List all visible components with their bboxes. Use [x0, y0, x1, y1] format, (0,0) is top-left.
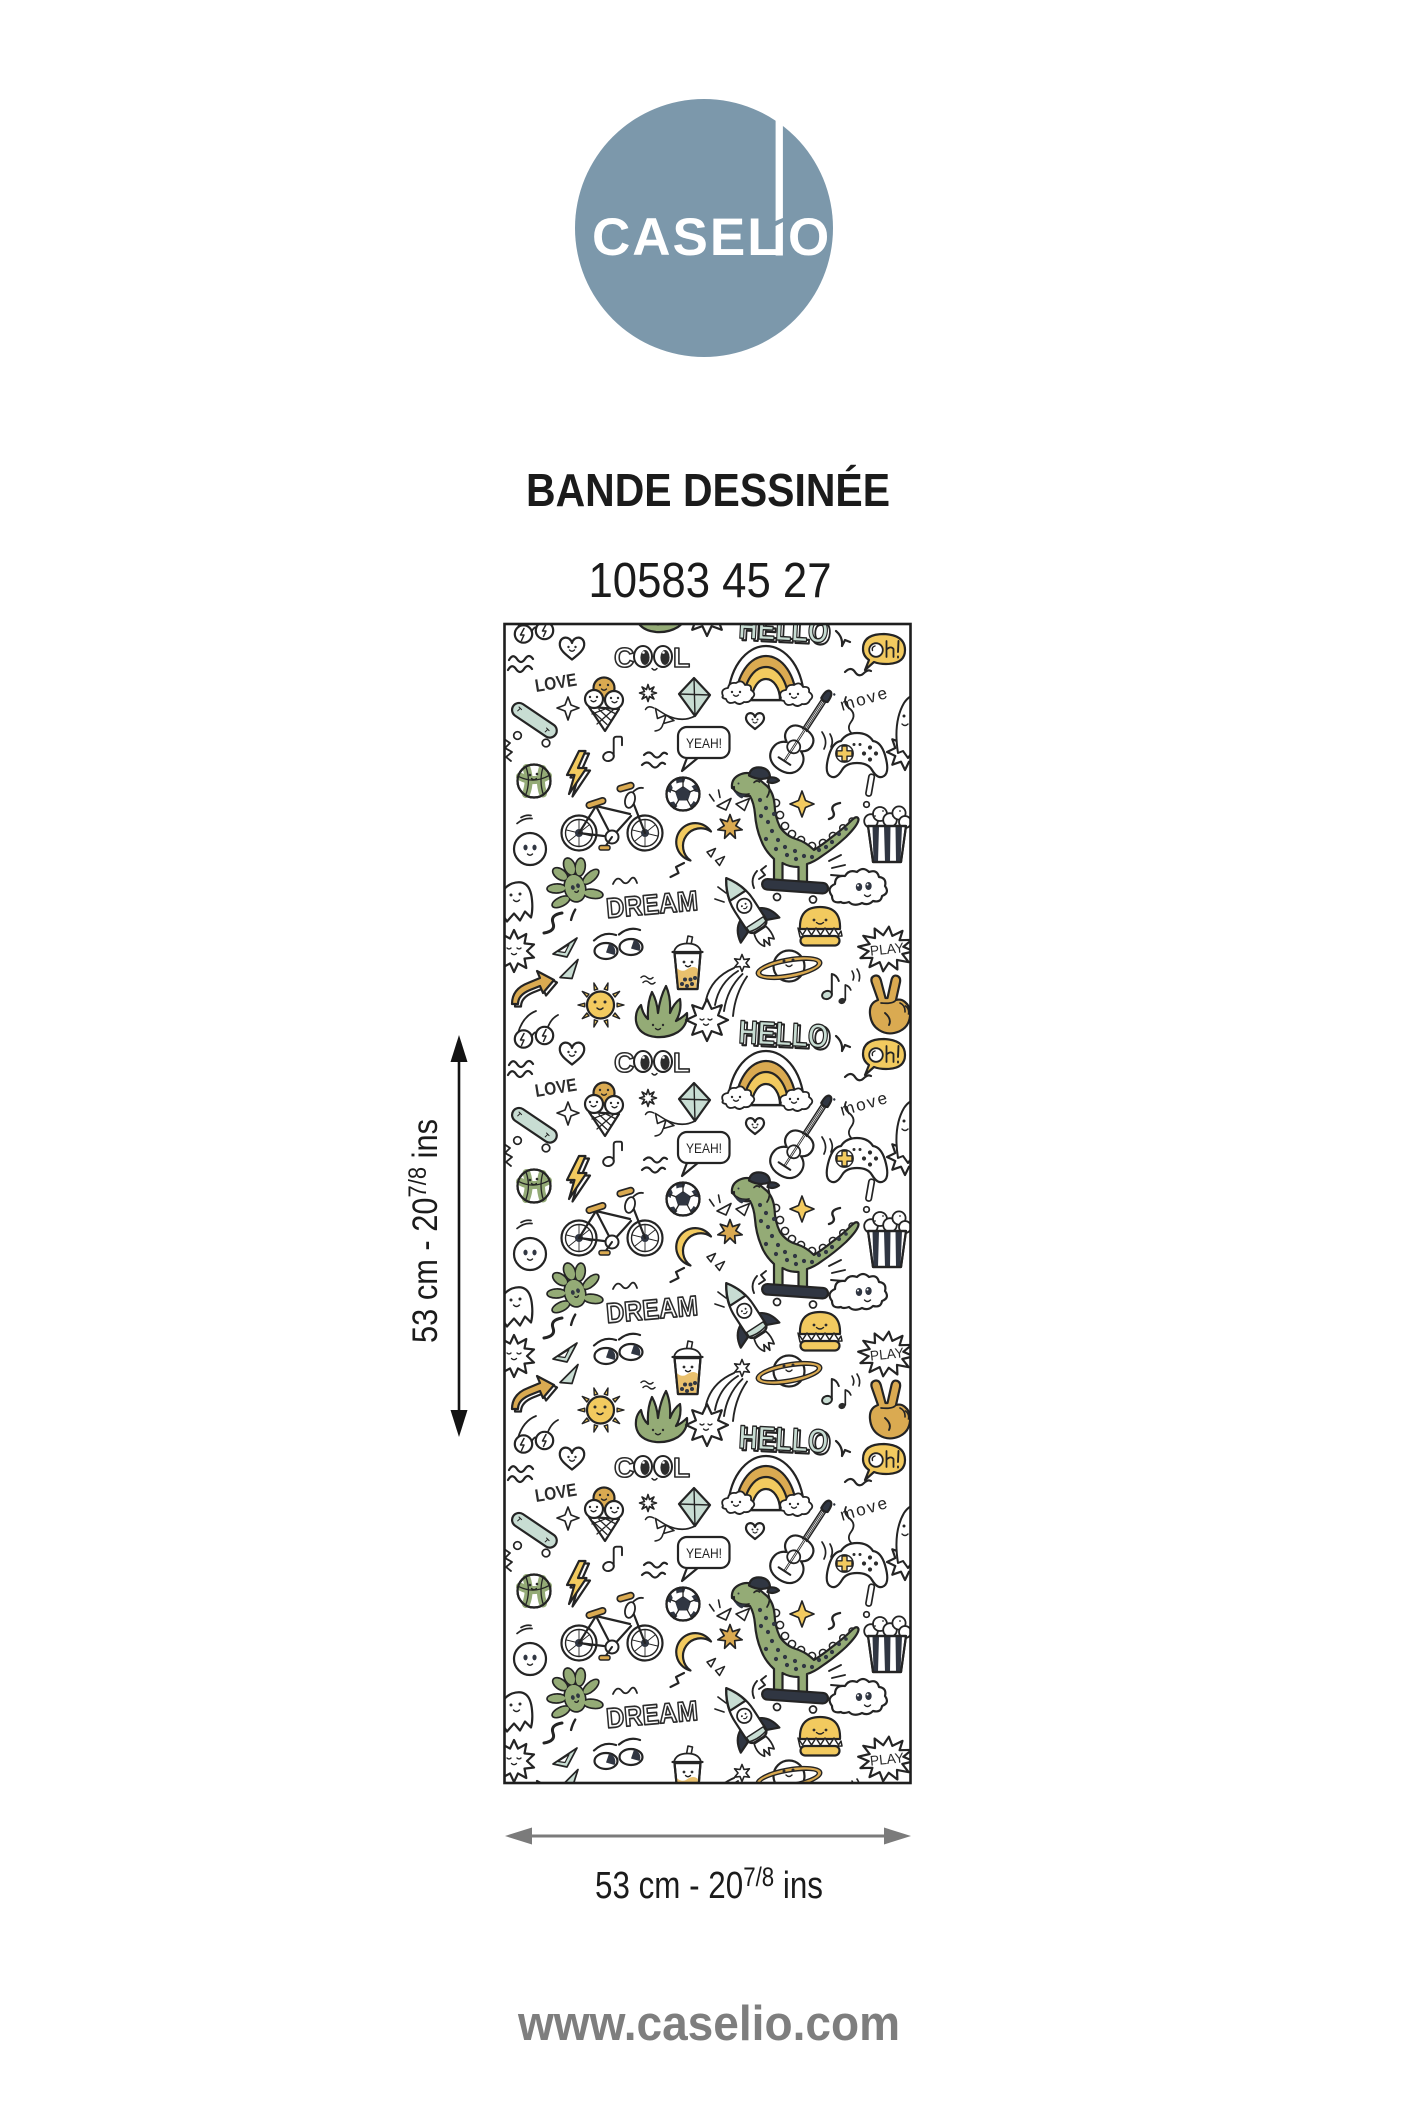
svg-text:10583 45 27: 10583 45 27 [589, 554, 832, 608]
svg-text:CASEL: CASEL [592, 208, 782, 267]
svg-text:O: O [788, 208, 829, 267]
svg-text:www.caselio.com: www.caselio.com [517, 1997, 900, 2051]
svg-text:53 cm - 207/8 ins: 53 cm - 207/8 ins [404, 1119, 445, 1343]
svg-text:BANDE DESSINÉE: BANDE DESSINÉE [526, 464, 890, 516]
svg-text:53 cm - 207/8 ins: 53 cm - 207/8 ins [595, 1862, 823, 1907]
